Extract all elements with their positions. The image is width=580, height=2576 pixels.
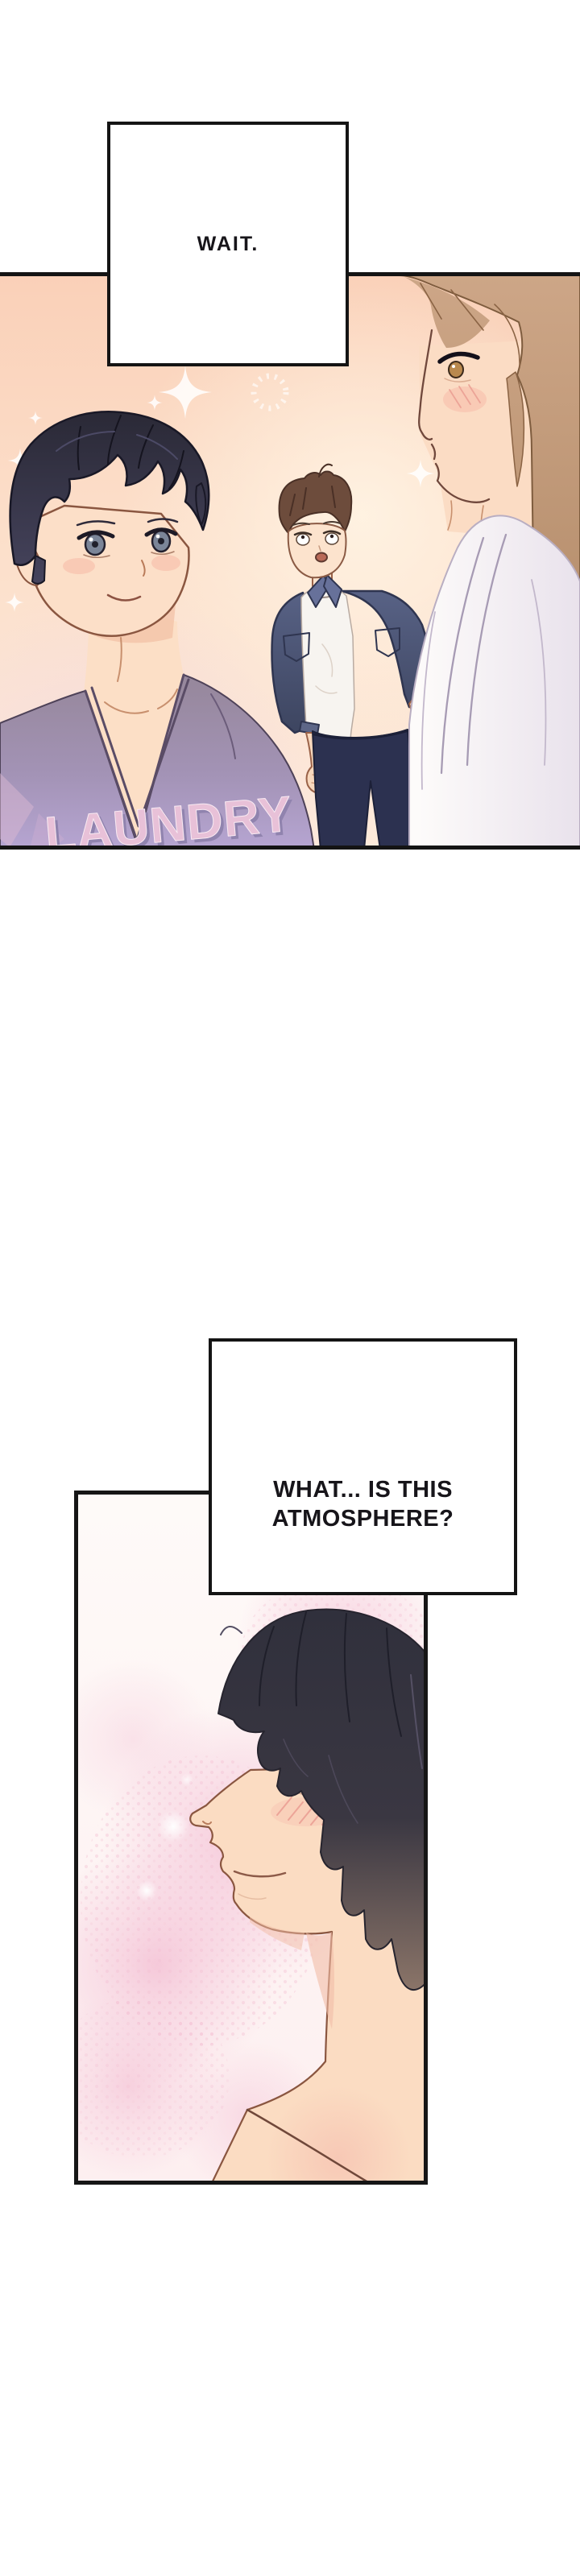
caption-atmosphere-text: WHAT... IS THIS ATMOSPHERE? [272, 1475, 454, 1533]
panel-bottom-border [0, 846, 580, 850]
comic-page: LAUNDRY LAUNDRY [0, 0, 580, 2576]
caption-box-wait: WAIT. [107, 122, 349, 366]
caption-atmosphere-line2: ATMOSPHERE? [272, 1504, 454, 1533]
caption-atmosphere-line1: WHAT... IS THIS [272, 1475, 454, 1504]
caption-wait-text: WAIT. [197, 233, 259, 256]
caption-box-atmosphere: WHAT... IS THIS ATMOSPHERE? [209, 1338, 517, 1595]
